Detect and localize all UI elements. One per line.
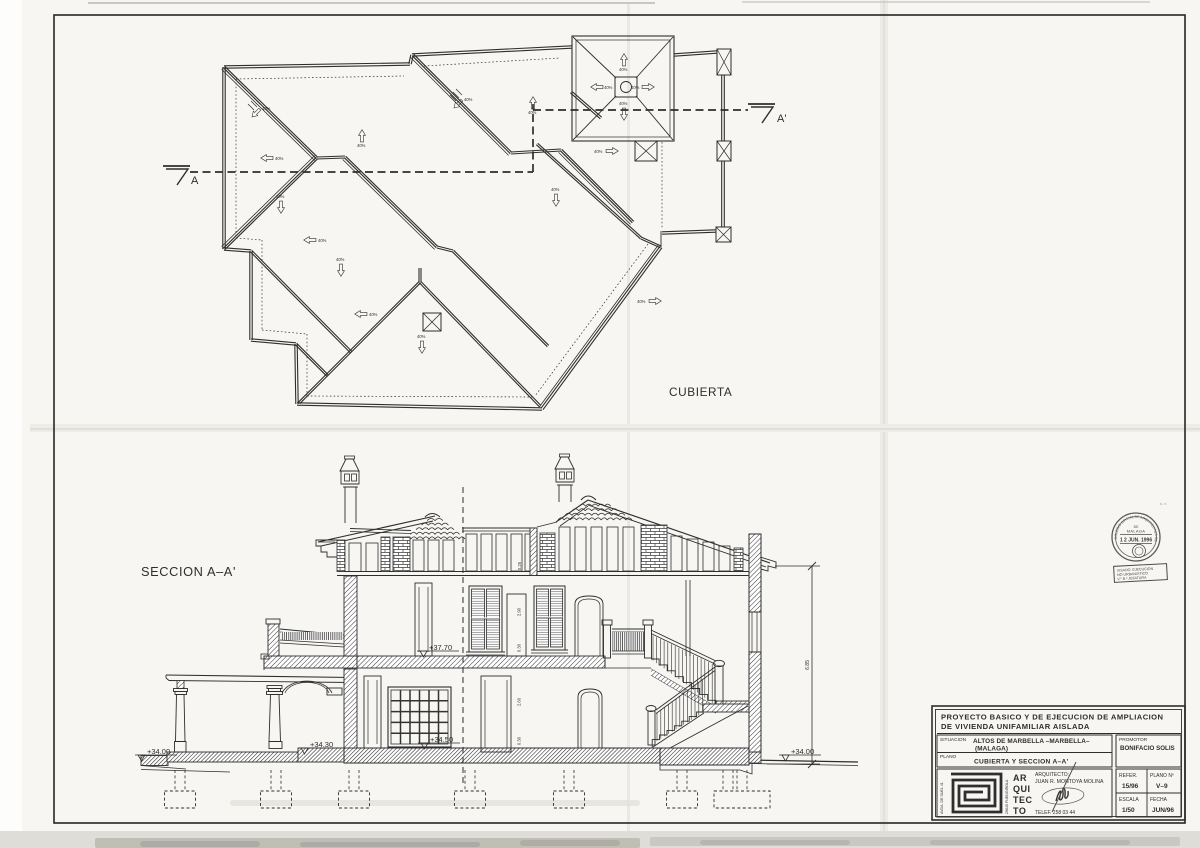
- svg-text:40%: 40%: [631, 85, 640, 90]
- svg-text:JUN/96: JUN/96: [1152, 807, 1174, 814]
- svg-text:FECHA: FECHA: [1150, 797, 1168, 803]
- svg-text:0.30: 0.30: [517, 643, 522, 652]
- svg-text:PROYECTO BASICO Y DE EJECUCION: PROYECTO BASICO Y DE EJECUCION DE AMPLIA…: [941, 713, 1163, 722]
- svg-text:40%: 40%: [275, 156, 284, 161]
- svg-text:DE VIVIENDA UNIFAMILIAR AISLAD: DE VIVIENDA UNIFAMILIAR AISLADA: [941, 722, 1090, 731]
- svg-text:40%: 40%: [594, 149, 603, 154]
- svg-text:ESCALA: ESCALA: [1119, 797, 1139, 803]
- svg-text:AR: AR: [1013, 773, 1027, 783]
- svg-text:TELEF. 258 03 44: TELEF. 258 03 44: [1035, 810, 1075, 816]
- svg-text:40%: 40%: [637, 299, 646, 304]
- svg-text:40%: 40%: [604, 85, 613, 90]
- svg-text:6.85: 6.85: [805, 660, 811, 670]
- svg-text:2.90: 2.90: [517, 607, 522, 616]
- svg-text:CUBIERTA: CUBIERTA: [669, 385, 732, 399]
- svg-text:15/96: 15/96: [1122, 783, 1139, 790]
- svg-text:40%: 40%: [262, 106, 271, 111]
- svg-text:SECCION A–A': SECCION A–A': [141, 564, 236, 579]
- svg-text:PLANO Nº: PLANO Nº: [1150, 773, 1174, 779]
- svg-text:A: A: [191, 175, 199, 187]
- svg-text:SITUACION: SITUACION: [940, 737, 967, 743]
- svg-text:40%: 40%: [357, 143, 366, 148]
- svg-text:QUI: QUI: [1013, 784, 1031, 794]
- svg-text:1 2 JUN. 1996: 1 2 JUN. 1996: [1120, 538, 1152, 544]
- svg-text:MALAGA: MALAGA: [1127, 529, 1146, 534]
- svg-text:29640 FUENGIROLA: 29640 FUENGIROLA: [1005, 779, 1009, 814]
- svg-text:AVDA. DE SUEL 41: AVDA. DE SUEL 41: [940, 782, 944, 814]
- svg-text:TO: TO: [1013, 806, 1026, 816]
- svg-text:CUBIERTA Y SECCION A–A': CUBIERTA Y SECCION A–A': [974, 759, 1069, 766]
- svg-text:s. n: s. n: [1160, 501, 1166, 506]
- svg-text:PLANO: PLANO: [940, 754, 957, 760]
- svg-text:40%: 40%: [619, 101, 628, 106]
- svg-text:REFER.: REFER.: [1119, 773, 1137, 779]
- svg-text:40%: 40%: [336, 257, 345, 262]
- svg-text:1/50: 1/50: [1122, 807, 1135, 814]
- svg-text:BONIFACIO SOLIS: BONIFACIO SOLIS: [1120, 745, 1175, 752]
- svg-text:0.25: 0.25: [517, 561, 522, 570]
- svg-text:40%: 40%: [464, 97, 473, 102]
- svg-text:PROMOTOR: PROMOTOR: [1119, 737, 1148, 743]
- svg-text:ARQUITECTO:: ARQUITECTO:: [1035, 772, 1069, 778]
- svg-text:40%: 40%: [619, 67, 628, 72]
- svg-text:TEC: TEC: [1013, 795, 1033, 805]
- svg-text:V–9: V–9: [1156, 783, 1168, 790]
- svg-text:40%: 40%: [318, 238, 327, 243]
- svg-text:(MALAGA): (MALAGA): [975, 746, 1008, 753]
- svg-text:40%: 40%: [369, 312, 378, 317]
- svg-text:40%: 40%: [551, 187, 560, 192]
- svg-text:JUAN R. MONTOYA MOLINA: JUAN R. MONTOYA MOLINA: [1035, 779, 1104, 785]
- svg-text:A': A': [777, 113, 786, 125]
- svg-text:ALTOS DE MARBELLA –MARBELLA–: ALTOS DE MARBELLA –MARBELLA–: [973, 738, 1090, 745]
- svg-text:2.60: 2.60: [517, 697, 522, 706]
- svg-text:0.30: 0.30: [517, 736, 522, 745]
- svg-text:40%: 40%: [417, 334, 426, 339]
- svg-text:40%: 40%: [276, 194, 285, 199]
